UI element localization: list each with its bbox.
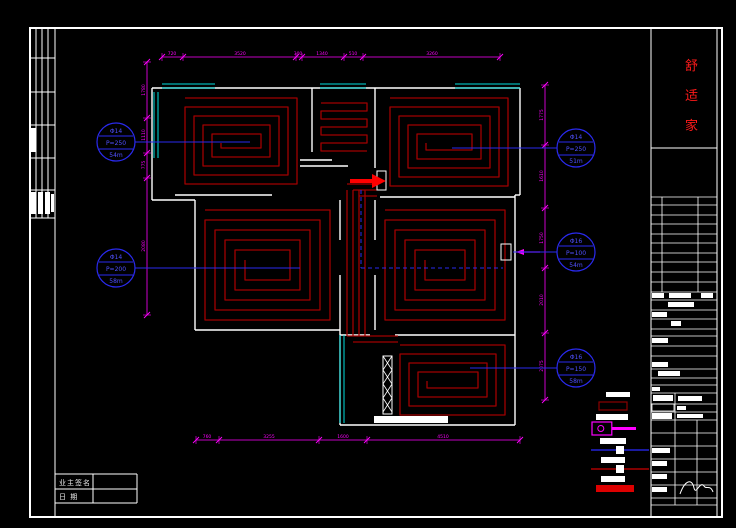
table-text-block bbox=[677, 414, 703, 418]
table-text-block bbox=[652, 312, 667, 317]
table-text-block bbox=[658, 371, 680, 376]
table-text-block bbox=[653, 395, 673, 401]
table-text-block bbox=[652, 293, 664, 298]
dim-label: 1110 bbox=[141, 129, 147, 141]
company-title: 舒 适 家 bbox=[685, 59, 698, 134]
legend-manifold-dial bbox=[598, 426, 604, 432]
title-char-1: 舒 bbox=[685, 59, 698, 74]
dim-label: 1340 bbox=[316, 51, 328, 57]
heating-coil bbox=[400, 345, 505, 415]
tag-pitch: P=250 bbox=[566, 146, 586, 153]
legend bbox=[591, 392, 649, 492]
legend-text-block bbox=[601, 457, 625, 463]
dim-label: 1600 bbox=[337, 434, 349, 440]
tag-length: 51m bbox=[569, 158, 583, 165]
loop-tag: Φ14P=25054m bbox=[97, 123, 250, 161]
dim-label: 1775 bbox=[539, 109, 545, 121]
dim-bottom: 760325516004510 bbox=[193, 434, 523, 444]
table-text-block bbox=[668, 302, 694, 307]
loop-tag: Φ16P=10054m bbox=[513, 233, 595, 271]
tag-pitch: P=200 bbox=[106, 266, 126, 273]
table-text-block bbox=[652, 387, 660, 391]
table-outline-cell bbox=[652, 404, 674, 411]
legend-text-block bbox=[601, 476, 625, 482]
dim-label: 3520 bbox=[234, 51, 246, 57]
title-char-2: 适 bbox=[685, 89, 698, 104]
legend-text-block bbox=[596, 414, 628, 420]
heating-coil bbox=[321, 103, 367, 151]
cad-canvas[interactable]: 业主签名 日 期 7203520300134051032607603255160… bbox=[0, 0, 736, 528]
table-text-block bbox=[677, 406, 686, 410]
tag-length: 58m bbox=[569, 378, 583, 385]
strip-text-block bbox=[38, 192, 43, 214]
table-text-block bbox=[652, 338, 668, 343]
loop-tag: Φ14P=20058m bbox=[97, 249, 300, 287]
table-text-block bbox=[652, 474, 667, 479]
signature-table: 业主签名 日 期 bbox=[55, 474, 137, 503]
legend-valve-square bbox=[616, 465, 624, 473]
strip-text-block bbox=[51, 194, 54, 212]
dim-label: 3260 bbox=[426, 51, 438, 57]
dim-label: 1780 bbox=[141, 84, 147, 96]
tag-length: 54m bbox=[569, 262, 583, 269]
dim-left: 178011107752080 bbox=[141, 59, 151, 318]
table-text-block bbox=[701, 293, 713, 298]
strip-text-block bbox=[31, 192, 36, 214]
dim-label: 2080 bbox=[141, 240, 147, 252]
dim-label: 510 bbox=[349, 51, 358, 57]
loop-tag: Φ16P=15058m bbox=[470, 349, 595, 387]
heating-coil bbox=[185, 98, 297, 184]
dim-label: 1750 bbox=[539, 232, 545, 244]
tag-diameter: Φ14 bbox=[570, 134, 583, 141]
dim-label: 3255 bbox=[263, 434, 275, 440]
loop-tag: Φ14P=25051m bbox=[452, 129, 595, 167]
legend-text-block bbox=[606, 392, 630, 397]
dim-label: 4510 bbox=[437, 434, 449, 440]
title-block-table bbox=[651, 197, 717, 505]
dim-label: 775 bbox=[141, 161, 147, 170]
strip-text-block bbox=[31, 128, 36, 152]
tag-length: 54m bbox=[109, 152, 123, 159]
heating-coil bbox=[205, 210, 330, 320]
table-text-block bbox=[652, 413, 672, 419]
supply-arrow-head bbox=[372, 174, 386, 188]
dim-label: 2010 bbox=[539, 294, 545, 306]
dimension-lines: 7203520300134051032607603255160045101780… bbox=[141, 51, 549, 444]
tag-diameter: Φ14 bbox=[110, 254, 123, 261]
heating-coil bbox=[385, 210, 505, 320]
cad-drawing-stage: 业主签名 日 期 7203520300134051032607603255160… bbox=[0, 0, 736, 528]
table-text-block bbox=[671, 321, 681, 326]
dim-label: 760 bbox=[203, 434, 212, 440]
date-label: 日 期 bbox=[59, 493, 78, 501]
tag-pitch: P=250 bbox=[106, 140, 126, 147]
owner-signature-label: 业主签名 bbox=[59, 478, 91, 487]
legend-coil-symbol bbox=[599, 402, 627, 410]
column-base bbox=[374, 416, 448, 423]
legend-valve-square bbox=[616, 446, 624, 454]
riser-pipes bbox=[347, 171, 540, 423]
table-text-block bbox=[669, 293, 691, 298]
heating-coil bbox=[390, 98, 508, 186]
strip-text-block bbox=[45, 192, 50, 214]
title-char-3: 家 bbox=[685, 118, 698, 134]
dim-label: 720 bbox=[168, 51, 177, 57]
dim-label: 2075 bbox=[539, 360, 545, 372]
legend-solid-bar bbox=[596, 485, 634, 492]
legend-text-block bbox=[600, 438, 626, 444]
dim-top: 720352030013405103260 bbox=[159, 51, 503, 61]
tag-diameter: Φ16 bbox=[570, 354, 583, 361]
table-text-block bbox=[652, 487, 667, 492]
table-text-block bbox=[678, 396, 702, 401]
tag-diameter: Φ14 bbox=[110, 128, 123, 135]
table-text-block bbox=[652, 362, 668, 367]
table-text-block bbox=[652, 461, 667, 466]
dim-label: 1610 bbox=[539, 170, 545, 182]
revision-strip bbox=[30, 28, 55, 218]
signature-scribble bbox=[680, 482, 713, 494]
dim-right: 17751610175020102075 bbox=[539, 82, 549, 403]
inlet-box bbox=[501, 244, 511, 260]
tag-length: 58m bbox=[109, 278, 123, 285]
tag-pitch: P=150 bbox=[566, 366, 586, 373]
tag-pitch: P=100 bbox=[566, 250, 586, 257]
dim-label: 300 bbox=[294, 51, 303, 57]
legend-manifold-symbol bbox=[592, 422, 612, 435]
tag-diameter: Φ16 bbox=[570, 238, 583, 245]
table-text-block bbox=[652, 448, 670, 453]
